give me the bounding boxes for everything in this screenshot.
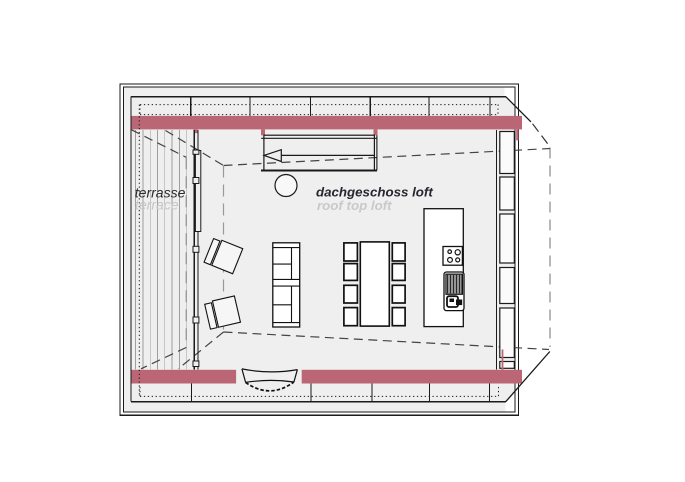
svg-text:roof top loft: roof top loft (317, 198, 392, 213)
svg-text:terrace: terrace (135, 197, 179, 213)
